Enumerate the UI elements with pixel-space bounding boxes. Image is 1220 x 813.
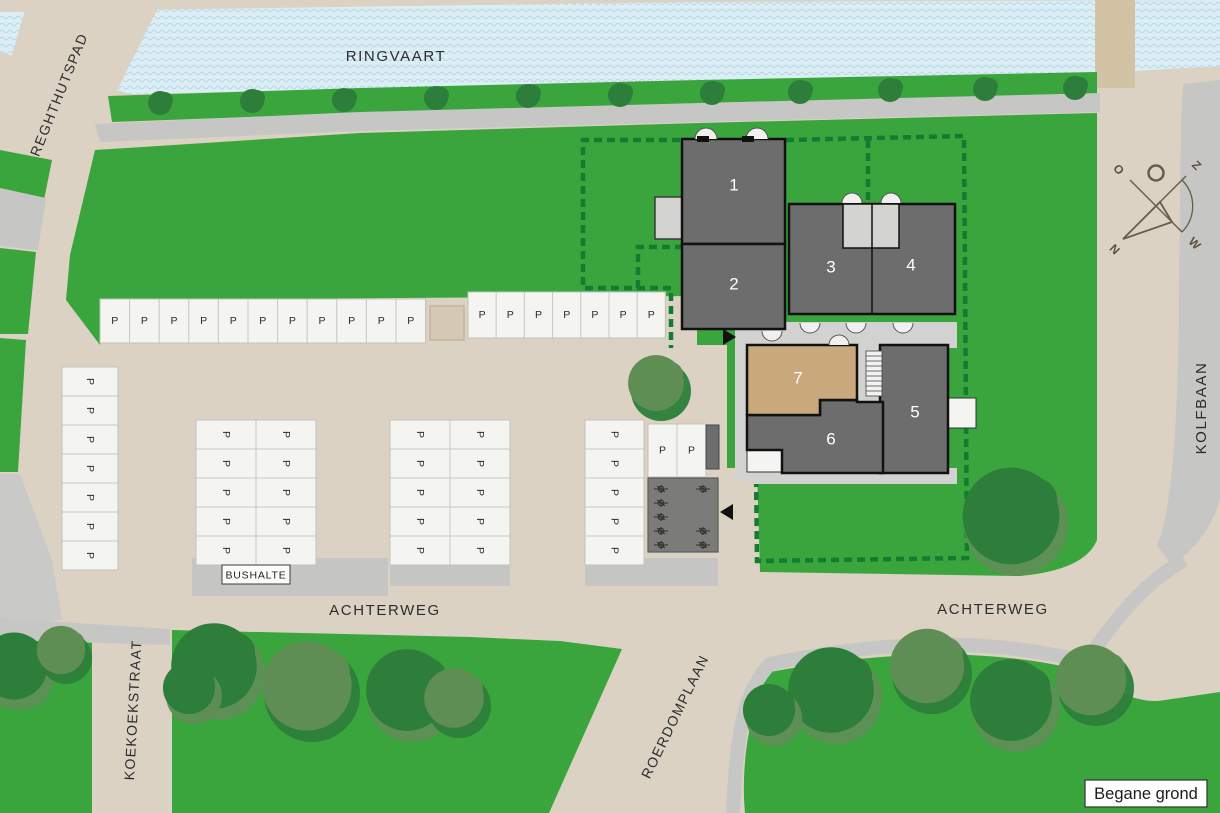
parking-group-row-north-east: PPPPPPP	[468, 292, 665, 338]
path-left-wedge	[0, 188, 46, 250]
annex-building-1	[655, 197, 683, 239]
parking-stall-letter: P	[414, 489, 426, 496]
parking-stall-letter: P	[170, 315, 177, 327]
building-7-number: 7	[793, 368, 802, 387]
parking-stall-letter: P	[414, 460, 426, 467]
parking-stall-letter: P	[318, 315, 325, 327]
building-6-number: 6	[826, 429, 835, 448]
parking-stall-letter: P	[659, 444, 666, 456]
courtyard-notch	[843, 204, 899, 248]
bus-stop: BUSHALTE	[222, 565, 290, 584]
parking-stall-letter: P	[84, 494, 96, 501]
parking-stall-letter: P	[474, 460, 486, 467]
parking-stall-letter: P	[84, 436, 96, 443]
parking-stall-letter: P	[280, 489, 292, 496]
parking-group-pair-east: PP	[648, 424, 706, 477]
building-1-number: 1	[729, 175, 738, 194]
building-3-number: 3	[826, 257, 835, 276]
parking-stall-letter: P	[414, 547, 426, 554]
parking-stall-letter: P	[609, 460, 621, 467]
annex-building-6	[747, 449, 782, 472]
parking-stall-letter: P	[84, 523, 96, 530]
door-mark	[742, 136, 754, 142]
parking-stall-letter: P	[414, 518, 426, 525]
parking-stall-letter: P	[609, 547, 621, 554]
parking-stall-letter: P	[609, 489, 621, 496]
parking-stall-letter: P	[111, 315, 118, 327]
site-plan-drawing: PPPPPPPPPPPPPPPPPPPPPPPPPPPPPPPPPPPPPPPP…	[0, 0, 1220, 813]
street-label-ringvaart: RINGVAART	[346, 48, 447, 65]
parking-stall-letter: P	[220, 518, 232, 525]
parking-stall-letter: P	[220, 489, 232, 496]
parking-stall-letter: P	[563, 309, 570, 321]
quay-patch	[1095, 0, 1135, 88]
parking-stall-letter: P	[259, 315, 266, 327]
street-label-kolfbaan: KOLFBAAN	[1193, 362, 1210, 455]
parking-stall-letter: P	[474, 547, 486, 554]
parking-stall-letter: P	[479, 309, 486, 321]
parking-stall-letter: P	[348, 315, 355, 327]
building-5-number: 5	[910, 402, 919, 421]
building-2-number: 2	[729, 274, 738, 293]
door-mark	[697, 136, 709, 142]
parking-group-row-north-west: PPPPPPPPPPP	[100, 299, 426, 343]
parking-stall-letter: P	[648, 309, 655, 321]
street-label-achterweg-east: ACHTERWEG	[937, 601, 1049, 618]
building-4-number: 4	[906, 255, 915, 274]
parking-stall-letter: P	[474, 489, 486, 496]
parking-stall-letter: P	[688, 444, 695, 456]
parking-stall-letter: P	[414, 431, 426, 438]
parking-stall-letter: P	[289, 315, 296, 327]
parking-stall-letter: P	[220, 431, 232, 438]
parking-group-block-center-west: PPPPPPPPPP	[196, 420, 316, 565]
parking-group-block-center-east: PPPPP	[585, 420, 644, 565]
parking-stall-letter: P	[84, 407, 96, 414]
parking-stall-letter: P	[507, 309, 514, 321]
walkway-west	[735, 322, 747, 480]
parking-stall-letter: P	[84, 378, 96, 385]
parking-stall-letter: P	[535, 309, 542, 321]
parking-stall-letter: P	[220, 547, 232, 554]
parking-stall-letter: P	[220, 460, 232, 467]
parking-stall-letter: P	[280, 431, 292, 438]
parking-stall-letter: P	[474, 431, 486, 438]
staircase	[866, 351, 882, 396]
parking-stall-letter: P	[280, 518, 292, 525]
annex-building-5	[948, 398, 976, 428]
parking-stall-letter: P	[378, 315, 385, 327]
parking-stall-letter: P	[141, 315, 148, 327]
parking-group-block-center: PPPPPPPPPP	[390, 420, 510, 565]
bus-stop-label: BUSHALTE	[225, 569, 286, 581]
parking-stall-letter: P	[280, 460, 292, 467]
parking-stall-letter: P	[609, 431, 621, 438]
parking-stall-letter: P	[230, 315, 237, 327]
floor-legend-label: Begane grond	[1094, 785, 1198, 803]
parking-stall-letter: P	[620, 309, 627, 321]
container	[706, 425, 719, 469]
street-label-achterweg-west: ACHTERWEG	[329, 602, 441, 619]
parking-group-column-west: PPPPPPP	[62, 367, 118, 570]
parking-stall-letter: P	[591, 309, 598, 321]
floor-legend: Begane grond	[1085, 780, 1207, 807]
parking-stall-letter: P	[280, 547, 292, 554]
parking-stall-letter: P	[407, 315, 414, 327]
utility-pad	[430, 306, 464, 340]
parking-stall-letter: P	[609, 518, 621, 525]
parking-stall-letter: P	[474, 518, 486, 525]
site-plan: PPPPPPPPPPPPPPPPPPPPPPPPPPPPPPPPPPPPPPPP…	[0, 0, 1220, 813]
parking-stall-letter: P	[84, 552, 96, 559]
parking-stall-letter: P	[84, 465, 96, 472]
parking-stall-letter: P	[200, 315, 207, 327]
